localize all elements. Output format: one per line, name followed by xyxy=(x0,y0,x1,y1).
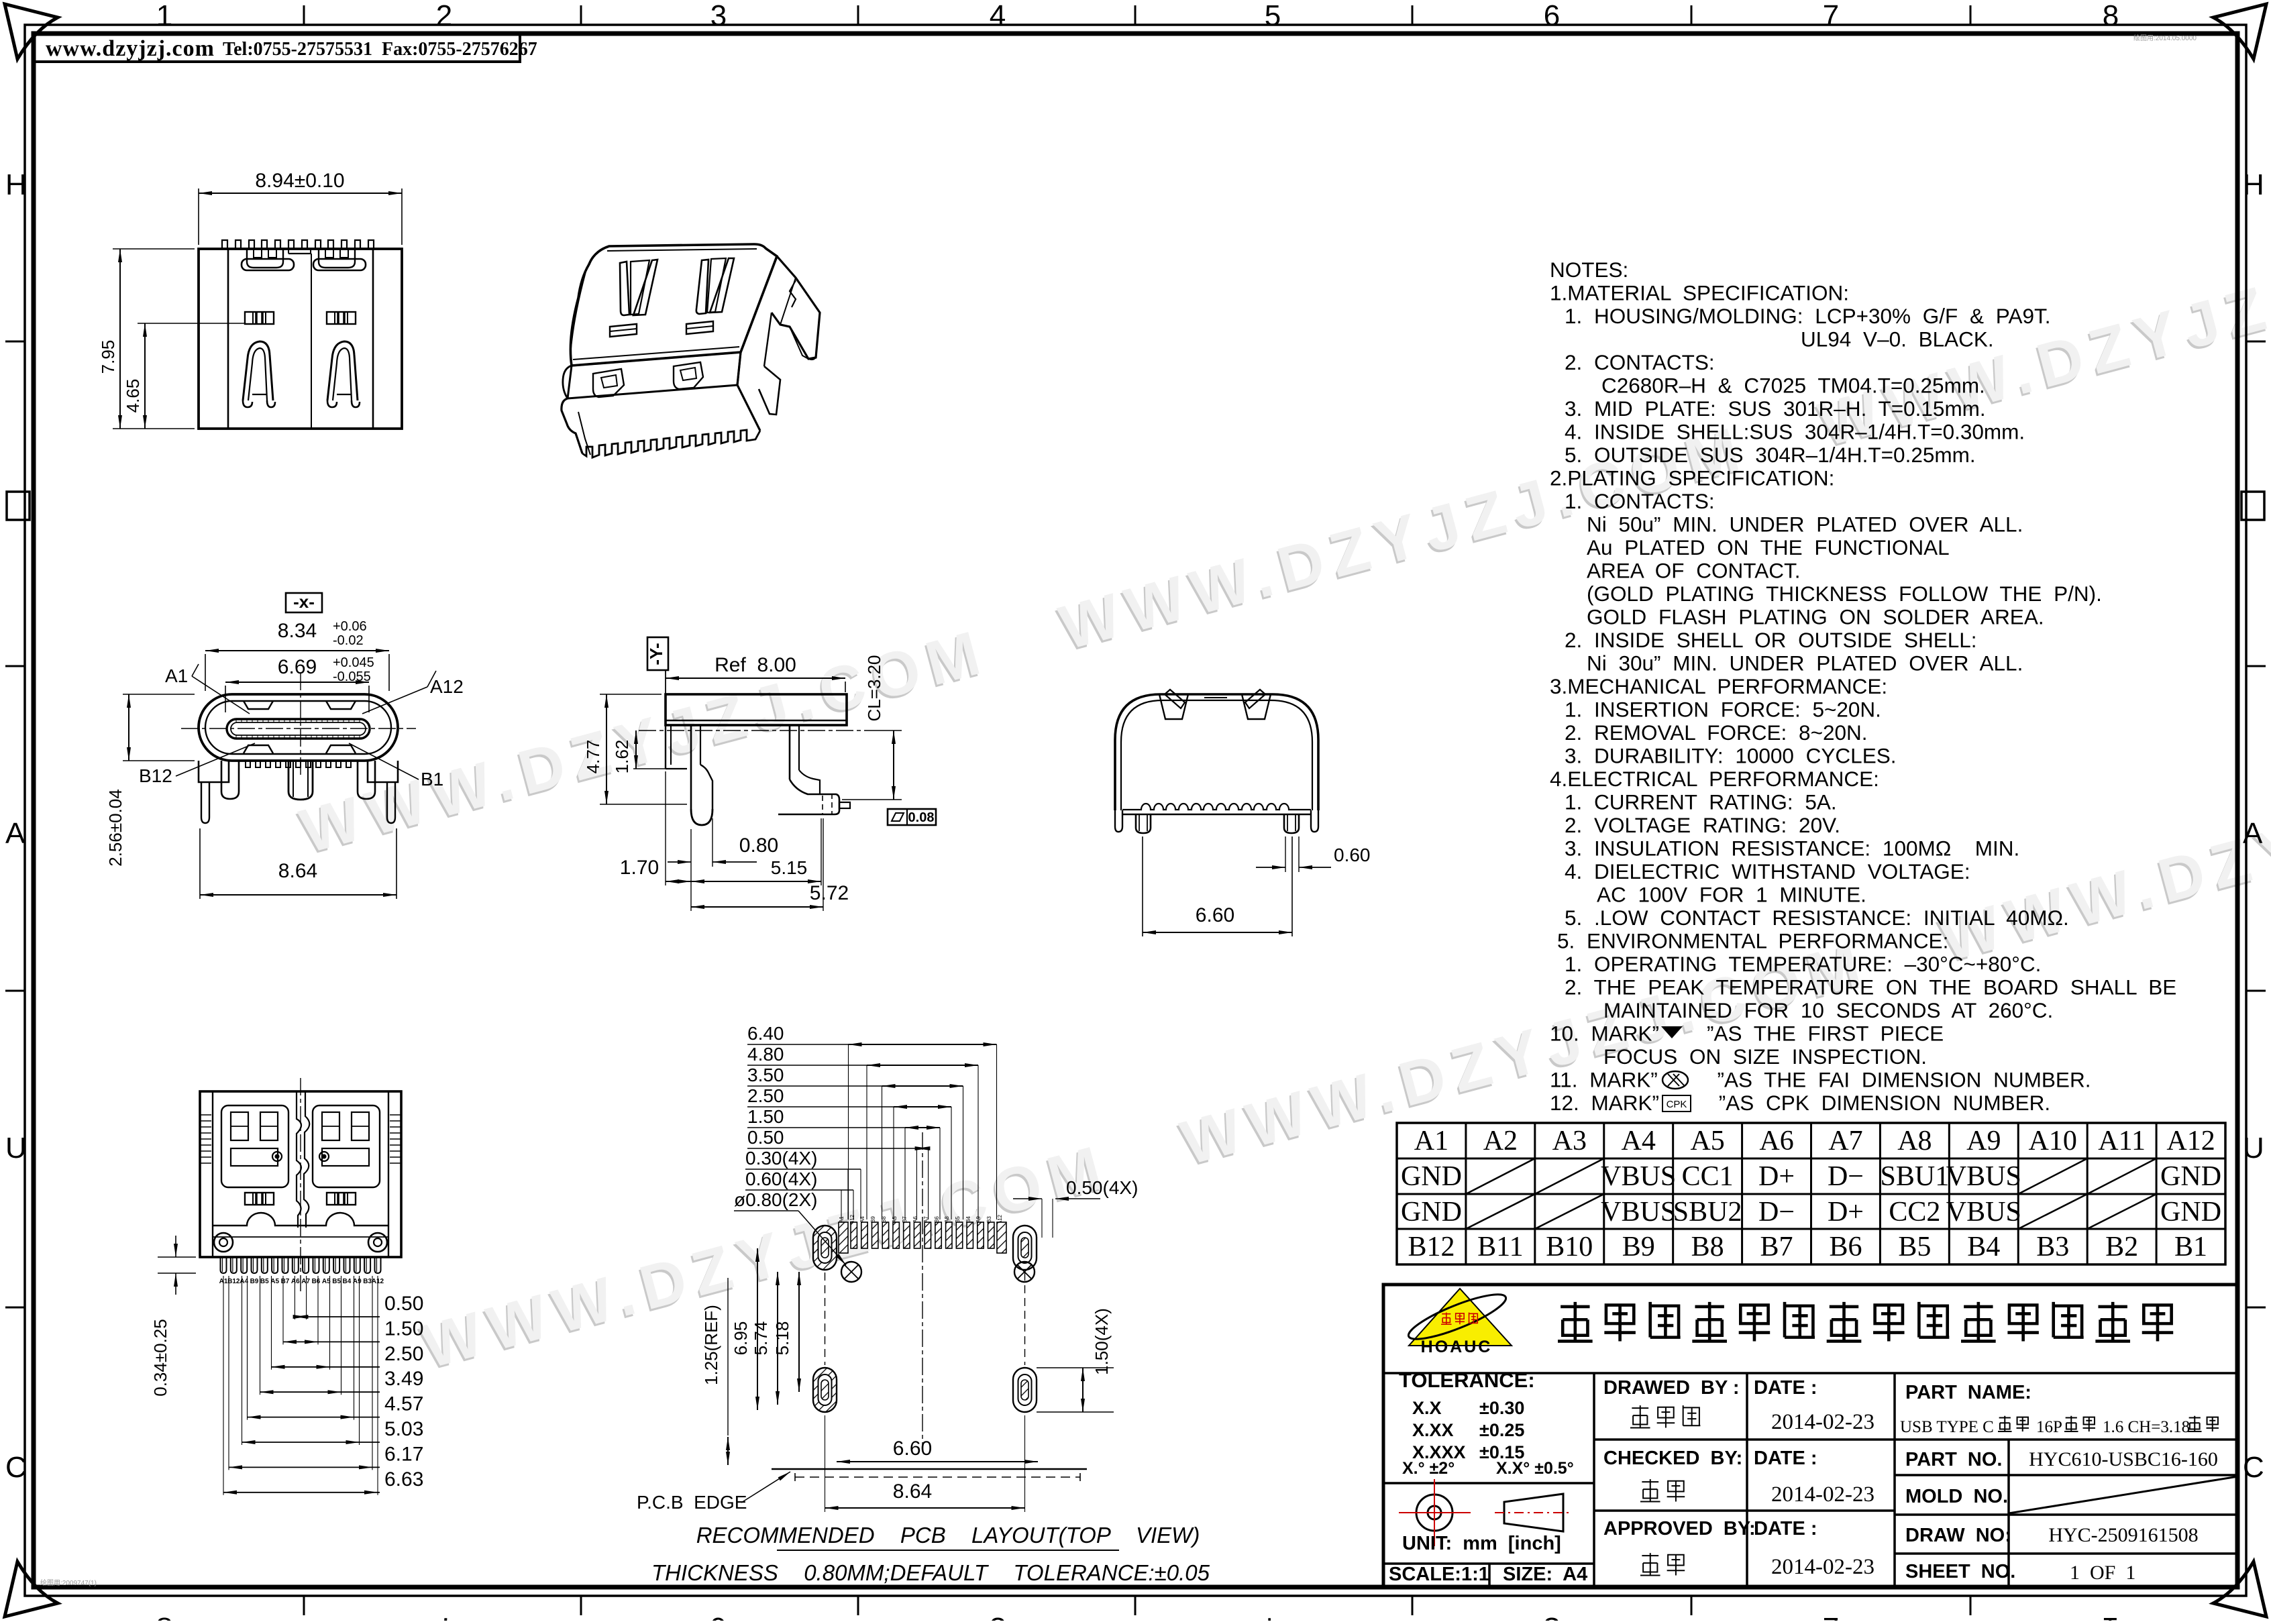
svg-text:16P: 16P xyxy=(2036,1418,2062,1436)
svg-text:0.50: 0.50 xyxy=(747,1127,784,1148)
svg-text:0.80: 0.80 xyxy=(739,834,778,857)
svg-text:Ni 50u” MIN. UNDER PLATED OVER: Ni 50u” MIN. UNDER PLATED OVER ALL. xyxy=(1587,512,2023,537)
svg-text:Ref 8.00: Ref 8.00 xyxy=(715,654,796,676)
svg-text:A1: A1 xyxy=(165,665,188,686)
svg-text:2014-02-23: 2014-02-23 xyxy=(1771,1410,1874,1434)
svg-text:A8: A8 xyxy=(1897,1126,1932,1156)
svg-text:DRAWED BY :: DRAWED BY : xyxy=(1603,1377,1739,1399)
svg-text:4.57: 4.57 xyxy=(384,1393,423,1415)
svg-text:1.MATERIAL SPECIFICATION:: 1.MATERIAL SPECIFICATION: xyxy=(1550,281,1849,305)
svg-text:4: 4 xyxy=(990,0,1006,32)
svg-text:B12: B12 xyxy=(227,1278,240,1285)
svg-text:0.50(4X): 0.50(4X) xyxy=(1066,1177,1138,1198)
svg-text:6: 6 xyxy=(710,1611,727,1621)
svg-text:UL94 V–0. BLACK.: UL94 V–0. BLACK. xyxy=(1801,327,1994,351)
svg-text:2. REMOVAL FORCE: 8~20N.: 2. REMOVAL FORCE: 8~20N. xyxy=(1565,720,1868,745)
svg-text:B6: B6 xyxy=(1829,1232,1862,1262)
svg-text:B5: B5 xyxy=(260,1278,269,1285)
svg-text:A10: A10 xyxy=(2029,1126,2077,1156)
svg-text:ø0.80(2X): ø0.80(2X) xyxy=(734,1189,818,1210)
svg-text:1. INSERTION FORCE: 5~20N.: 1. INSERTION FORCE: 5~20N. xyxy=(1565,698,1881,722)
svg-text:8.64: 8.64 xyxy=(893,1480,932,1503)
svg-text:VBUS: VBUS xyxy=(1601,1161,1676,1192)
svg-text:U: U xyxy=(5,1132,27,1165)
svg-text:C2680R–H & C7025 TM04.T=0.25mm: C2680R–H & C7025 TM04.T=0.25mm. xyxy=(1601,374,1985,398)
svg-text:-x-: -x- xyxy=(293,592,315,612)
svg-text:AC 100V FOR 1 MINUTE.: AC 100V FOR 1 MINUTE. xyxy=(1597,883,1866,907)
svg-text:0.60(4X): 0.60(4X) xyxy=(745,1169,817,1189)
svg-text:5.74: 5.74 xyxy=(751,1321,771,1356)
svg-text:UNIT: mm [inch]: UNIT: mm [inch] xyxy=(1402,1533,1561,1554)
svg-text:SHEET NO.: SHEET NO. xyxy=(1905,1561,2015,1582)
svg-text:5. OUTSIDE SUS 304R–1/4H.T=0.2: 5. OUTSIDE SUS 304R–1/4H.T=0.25mm. xyxy=(1565,443,1976,467)
svg-text:2: 2 xyxy=(436,0,452,32)
svg-text:6.40: 6.40 xyxy=(747,1023,784,1044)
svg-text:A5: A5 xyxy=(1690,1126,1724,1156)
svg-text:D−: D− xyxy=(1828,1161,1864,1192)
svg-text:6.17: 6.17 xyxy=(384,1443,423,1465)
svg-text:-Y-: -Y- xyxy=(646,643,666,665)
svg-text:0.50: 0.50 xyxy=(384,1293,423,1315)
svg-text:DATE :: DATE : xyxy=(1754,1377,1817,1399)
svg-text:CC2: CC2 xyxy=(1889,1197,1940,1228)
svg-text:GOLD FLASH PLATING ON SOLDER A: GOLD FLASH PLATING ON SOLDER AREA. xyxy=(1587,605,2044,629)
svg-text:(GOLD PLATING THICKNESS FOLLOW: (GOLD PLATING THICKNESS FOLLOW THE P/N). xyxy=(1587,582,2102,606)
svg-text:5.18: 5.18 xyxy=(772,1321,792,1356)
svg-text:+0.06: +0.06 xyxy=(333,619,367,634)
svg-text:4: 4 xyxy=(1265,1611,1281,1621)
svg-text:A12: A12 xyxy=(2166,1126,2215,1156)
svg-text:0.08: 0.08 xyxy=(908,810,935,825)
svg-text:5. ENVIRONMENTAL PERFORMANCE:: 5. ENVIRONMENTAL PERFORMANCE: xyxy=(1557,929,1948,953)
svg-text:4.65: 4.65 xyxy=(123,379,143,413)
svg-text:B7: B7 xyxy=(281,1278,290,1285)
svg-text:SBU2: SBU2 xyxy=(1673,1197,1742,1228)
svg-text:www.dzyjzj.com: www.dzyjzj.com xyxy=(46,36,215,61)
svg-text:B9: B9 xyxy=(250,1278,259,1285)
svg-text:X.X: X.X xyxy=(1412,1398,1442,1418)
svg-text:Tel:0755-27575531 Fax:0755-27: Tel:0755-27575531 Fax:0755-27576267 xyxy=(223,39,537,60)
svg-text:HOAUC: HOAUC xyxy=(1421,1338,1493,1356)
svg-text:2.50: 2.50 xyxy=(747,1085,784,1106)
svg-text:3: 3 xyxy=(710,0,727,32)
svg-text:GND: GND xyxy=(2160,1161,2221,1192)
svg-text:1.62: 1.62 xyxy=(612,740,632,774)
svg-text:2.56±0.04: 2.56±0.04 xyxy=(105,789,125,866)
svg-text:3.MECHANICAL PERFORMANCE:: 3.MECHANICAL PERFORMANCE: xyxy=(1550,674,1887,698)
svg-text:1.50: 1.50 xyxy=(747,1106,784,1127)
svg-text:THICKNESS 0.80MM;DEFAULT TOL: THICKNESS 0.80MM;DEFAULT TOLERANCE:±0.05 xyxy=(651,1560,1210,1585)
svg-text:B3: B3 xyxy=(2036,1232,2069,1262)
svg-text:CL=3.20: CL=3.20 xyxy=(864,655,884,721)
svg-text:D−: D− xyxy=(1758,1197,1795,1228)
svg-text:2.PLATING SPECIFICATION:: 2.PLATING SPECIFICATION: xyxy=(1550,466,1834,490)
svg-text:8.64: 8.64 xyxy=(278,860,317,882)
svg-text:AREA OF CONTACT.: AREA OF CONTACT. xyxy=(1587,559,1800,583)
svg-text:A2: A2 xyxy=(1483,1126,1518,1156)
svg-text:6: 6 xyxy=(1544,0,1560,32)
svg-text:A7: A7 xyxy=(301,1278,310,1285)
svg-text:B1: B1 xyxy=(2174,1232,2207,1262)
svg-text:APPROVED BY:: APPROVED BY: xyxy=(1603,1518,1756,1539)
svg-text:3. MID PLATE: SUS 301R–H. T=0.: 3. MID PLATE: SUS 301R–H. T=0.15mm. xyxy=(1565,396,1986,421)
svg-text:VBUS: VBUS xyxy=(1946,1197,2021,1228)
svg-text:1.50: 1.50 xyxy=(384,1317,423,1340)
svg-text:11. MARK” ”AS THE FAI DIME: 11. MARK” ”AS THE FAI DIMENSION NUMBER. xyxy=(1550,1068,2091,1092)
svg-text:FOCUS ON SIZE INSPECTION.: FOCUS ON SIZE INSPECTION. xyxy=(1603,1044,1927,1069)
svg-text:B4: B4 xyxy=(343,1278,352,1285)
svg-text:A4: A4 xyxy=(1622,1126,1656,1156)
svg-text:3: 3 xyxy=(1544,1611,1560,1621)
svg-text:10. MARK” ”AS THE FIRST PIE: 10. MARK” ”AS THE FIRST PIECE xyxy=(1550,1022,1944,1046)
svg-text:7.95: 7.95 xyxy=(98,340,118,374)
svg-text:GND: GND xyxy=(1401,1197,1462,1228)
svg-text:GND: GND xyxy=(1401,1161,1462,1192)
svg-text:3.50: 3.50 xyxy=(747,1065,784,1085)
svg-text:2. INSIDE SHELL OR OUTSIDE SHE: 2. INSIDE SHELL OR OUTSIDE SHELL: xyxy=(1565,628,1977,652)
svg-text:1. CURRENT RATING: 5A.: 1. CURRENT RATING: 5A. xyxy=(1565,790,1837,814)
svg-text:1.25(REF): 1.25(REF) xyxy=(701,1305,721,1385)
svg-text:CPK: CPK xyxy=(1667,1099,1687,1110)
svg-text:A6: A6 xyxy=(291,1278,300,1285)
svg-text:±0.25: ±0.25 xyxy=(1479,1420,1524,1440)
svg-text:C: C xyxy=(2243,1451,2264,1484)
svg-text:6.95: 6.95 xyxy=(731,1321,751,1356)
svg-text:6.60: 6.60 xyxy=(1196,904,1234,926)
svg-text:2014-02-23: 2014-02-23 xyxy=(1771,1482,1874,1507)
svg-text:3. INSULATION RESISTANCE: 100M: 3. INSULATION RESISTANCE: 100MΩ MIN. xyxy=(1565,836,2019,861)
svg-text:B6: B6 xyxy=(312,1278,321,1285)
svg-text:绘图用:2009747(1): 绘图用:2009747(1) xyxy=(40,1578,97,1587)
svg-text:7: 7 xyxy=(1823,0,1839,32)
svg-text:A1: A1 xyxy=(1414,1126,1448,1156)
svg-text:B5: B5 xyxy=(1898,1232,1931,1262)
svg-text:RECOMMENDED PCB LAYOUT(TOP: RECOMMENDED PCB LAYOUT(TOP VIEW) xyxy=(696,1523,1200,1548)
svg-text:VBUS: VBUS xyxy=(1946,1161,2021,1192)
svg-text:绘图用:2014.05.0000: 绘图用:2014.05.0000 xyxy=(2133,34,2197,42)
svg-text:±0.30: ±0.30 xyxy=(1479,1398,1524,1418)
svg-text:1 OF 1: 1 OF 1 xyxy=(2070,1562,2135,1584)
svg-text:2014-02-23: 2014-02-23 xyxy=(1771,1555,1874,1579)
svg-text:8.94±0.10: 8.94±0.10 xyxy=(255,170,344,192)
svg-text:8.34: 8.34 xyxy=(278,620,317,642)
svg-text:1. CONTACTS:: 1. CONTACTS: xyxy=(1565,489,1715,513)
svg-text:8: 8 xyxy=(2103,0,2119,32)
svg-text:1. OPERATING TEMPERATURE: –30°: 1. OPERATING TEMPERATURE: –30°C~+80°C. xyxy=(1565,952,2041,976)
svg-text:VBUS: VBUS xyxy=(1601,1197,1676,1228)
svg-text:D+: D+ xyxy=(1828,1197,1864,1228)
svg-text:DRAW NO:: DRAW NO: xyxy=(1905,1525,2011,1546)
svg-text:DATE :: DATE : xyxy=(1754,1518,1817,1539)
svg-text:1.6 CH=3.18: 1.6 CH=3.18 xyxy=(2103,1418,2190,1436)
svg-text:8: 8 xyxy=(156,1611,172,1621)
svg-text:-0.02: -0.02 xyxy=(333,633,364,648)
svg-text:2. VOLTAGE RATING: 20V.: 2. VOLTAGE RATING: 20V. xyxy=(1565,813,1840,837)
svg-text:5: 5 xyxy=(990,1611,1006,1621)
svg-text:12. MARK” ”AS CPK DIMENSIO: 12. MARK” ”AS CPK DIMENSION NUMBER. xyxy=(1550,1091,2050,1115)
svg-text:SIZE: A4: SIZE: A4 xyxy=(1503,1564,1587,1585)
svg-text:6.63: 6.63 xyxy=(384,1468,423,1491)
svg-text:C: C xyxy=(5,1451,27,1484)
svg-text:B9: B9 xyxy=(1622,1232,1655,1262)
svg-text:A6: A6 xyxy=(1759,1126,1793,1156)
svg-text:SCALE:1:1: SCALE:1:1 xyxy=(1389,1564,1489,1585)
svg-text:1. HOUSING/MOLDING: LCP+30% G/: 1. HOUSING/MOLDING: LCP+30% G/F & PA9T. xyxy=(1565,304,2050,328)
svg-text:A: A xyxy=(5,817,25,850)
svg-text:B12: B12 xyxy=(1408,1232,1455,1262)
svg-text:2: 2 xyxy=(1823,1611,1839,1621)
svg-text:B10: B10 xyxy=(1546,1232,1593,1262)
svg-text:2. CONTACTS:: 2. CONTACTS: xyxy=(1565,350,1715,374)
svg-text:2.50: 2.50 xyxy=(384,1343,423,1365)
svg-text:4.77: 4.77 xyxy=(583,740,603,774)
svg-text:B1: B1 xyxy=(421,769,443,790)
svg-text:NOTES:: NOTES: xyxy=(1550,258,1628,282)
svg-text:SBU1: SBU1 xyxy=(1881,1161,1950,1192)
svg-text:X.XX: X.XX xyxy=(1412,1420,1454,1440)
svg-text:B7: B7 xyxy=(1760,1232,1793,1262)
svg-text:3. DURABILITY: 10000 CYCLES.: 3. DURABILITY: 10000 CYCLES. xyxy=(1565,744,1896,768)
svg-text:A3: A3 xyxy=(1552,1126,1587,1156)
svg-text:4. DIELECTRIC WITHSTAND VOLTAG: 4. DIELECTRIC WITHSTAND VOLTAGE: xyxy=(1565,859,1970,883)
svg-text:GND: GND xyxy=(2160,1197,2221,1228)
svg-text:MOLD NO.: MOLD NO. xyxy=(1905,1486,2008,1507)
svg-text:CHECKED BY:: CHECKED BY: xyxy=(1603,1448,1742,1469)
svg-text:0.30(4X): 0.30(4X) xyxy=(745,1148,817,1169)
svg-text:7: 7 xyxy=(436,1611,452,1621)
svg-text:A11: A11 xyxy=(2098,1126,2146,1156)
svg-text:4.ELECTRICAL PERFORMANCE:: 4.ELECTRICAL PERFORMANCE: xyxy=(1550,767,1879,791)
svg-text:5.03: 5.03 xyxy=(384,1418,423,1440)
svg-text:2. THE PEAK TEMPERATURE ON THE: 2. THE PEAK TEMPERATURE ON THE BOARD SHA… xyxy=(1565,975,2176,999)
svg-text:PART NAME:: PART NAME: xyxy=(1905,1382,2031,1403)
svg-text:DATE :: DATE : xyxy=(1754,1448,1817,1469)
svg-text:USB TYPE C: USB TYPE C xyxy=(1900,1418,1994,1436)
svg-text:A: A xyxy=(2243,817,2263,850)
svg-text:3.49: 3.49 xyxy=(384,1368,423,1390)
svg-text:5.15: 5.15 xyxy=(771,857,808,878)
svg-text:B11: B11 xyxy=(1477,1232,1523,1262)
svg-text:HYC610-USBC16-160: HYC610-USBC16-160 xyxy=(2029,1448,2218,1470)
svg-text:X.° ±2°: X.° ±2° xyxy=(1402,1459,1455,1478)
svg-text:TOLERANCE:: TOLERANCE: xyxy=(1399,1368,1535,1392)
svg-text:+0.045: +0.045 xyxy=(333,655,374,670)
svg-text:A5: A5 xyxy=(270,1278,279,1285)
svg-text:B5: B5 xyxy=(332,1278,341,1285)
svg-text:A12: A12 xyxy=(430,676,464,697)
svg-text:A9: A9 xyxy=(1966,1126,2001,1156)
svg-text:A7: A7 xyxy=(1828,1126,1862,1156)
svg-text:CC1: CC1 xyxy=(1682,1161,1734,1192)
svg-text:U: U xyxy=(2243,1132,2264,1165)
svg-text:1.50(4X): 1.50(4X) xyxy=(1092,1308,1112,1375)
svg-text:1: 1 xyxy=(2103,1611,2119,1621)
svg-text:4.80: 4.80 xyxy=(747,1044,784,1065)
svg-text:B12: B12 xyxy=(139,765,172,786)
svg-text:H: H xyxy=(5,168,27,201)
svg-text:Au PLATED ON THE FUNCTIONAL: Au PLATED ON THE FUNCTIONAL xyxy=(1587,535,1950,559)
svg-text:1: 1 xyxy=(156,0,172,32)
svg-text:0.34±0.25: 0.34±0.25 xyxy=(150,1319,170,1396)
svg-text:B8: B8 xyxy=(1691,1232,1724,1262)
svg-text:HYC-2509161508: HYC-2509161508 xyxy=(2048,1524,2198,1546)
svg-text:B4: B4 xyxy=(1967,1232,2000,1262)
svg-text:D+: D+ xyxy=(1758,1161,1795,1192)
svg-text:X.X° ±0.5°: X.X° ±0.5° xyxy=(1496,1459,1574,1478)
svg-text:4. INSIDE SHELL:SUS 304R–1/4H.: 4. INSIDE SHELL:SUS 304R–1/4H.T=0.30mm. xyxy=(1565,420,2025,444)
svg-text:B3: B3 xyxy=(363,1278,372,1285)
svg-text:6.60: 6.60 xyxy=(893,1438,932,1460)
svg-text:5. .LOW CONTACT RESISTANCE: IN: 5. .LOW CONTACT RESISTANCE: INITIAL 40MΩ… xyxy=(1565,906,2069,930)
svg-text:H: H xyxy=(2243,168,2264,201)
svg-text:MAINTAINED FOR 10 SECONDS AT 2: MAINTAINED FOR 10 SECONDS AT 260°C. xyxy=(1603,998,2053,1022)
svg-text:5: 5 xyxy=(1265,0,1281,32)
svg-text:B2: B2 xyxy=(2105,1232,2138,1262)
svg-text:Ni 30u” MIN. UNDER PLATED OVER: Ni 30u” MIN. UNDER PLATED OVER ALL. xyxy=(1587,651,2023,675)
svg-text:1.70: 1.70 xyxy=(620,857,659,879)
svg-text:0.60: 0.60 xyxy=(1334,845,1371,865)
svg-text:5.72: 5.72 xyxy=(810,882,849,904)
svg-text:PART NO.: PART NO. xyxy=(1905,1449,2002,1470)
svg-text:P.C.B EDGE: P.C.B EDGE xyxy=(637,1492,747,1513)
svg-text:6.69: 6.69 xyxy=(278,656,317,678)
